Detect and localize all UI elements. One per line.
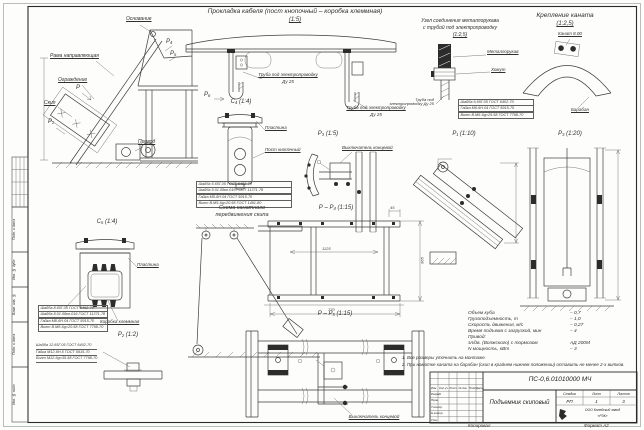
scheme-title-2: передвижения скипа: [196, 213, 288, 219]
label-truba: Труба под электропроводку Ду 25: [384, 98, 434, 107]
p3-5-view-title: Р₃ (1:5): [306, 131, 350, 137]
fastener-table-c5: Шайба 8.65Г.05 ГОСТ 6402-70 Шайба 8.01.0…: [38, 305, 108, 332]
tb-col-list: Лист: [449, 386, 457, 390]
spec-value: [570, 335, 612, 340]
side-stamp-vzam: Взам. инв. №: [12, 287, 28, 322]
c4-view-linework: [218, 113, 266, 189]
spec-row: Грузоподъемность, т– 1,0: [468, 317, 612, 322]
spec-name: Скорость движения, м/с: [468, 323, 570, 328]
tb-row-tkontr: Т.контр.: [431, 405, 443, 409]
c5-view-title: С₅ (1:4): [84, 219, 130, 225]
p2-view-linework: [103, 352, 162, 391]
marker-p: Р: [76, 85, 80, 91]
side-stamp-inv-dubl: Инв. № дубл.: [12, 252, 28, 287]
tb-col-dok: № док.: [457, 386, 469, 390]
spec-name: Объем куба: [468, 311, 570, 316]
side-stamp-text: Инв. № дубл.: [12, 252, 28, 287]
tb-row-razrab: Разраб.: [431, 392, 441, 396]
company-name-2: «РЗК»: [570, 414, 635, 418]
node-title-2: с трубой под электропроводку: [404, 26, 516, 31]
tb-stage-value: РП: [556, 399, 583, 404]
dim-center: 1125: [322, 246, 331, 251]
tb-col-podp: Подп.: [469, 386, 476, 390]
company-logo-mark: [559, 409, 567, 420]
marker-p1: Р₁: [48, 119, 54, 125]
fastener-table-c4: Шайба 5.65Г.05 ГОСТ 6402-70 Шайба 5.01.0…: [196, 181, 292, 208]
spec-name: Грузоподъемность, т: [468, 317, 570, 322]
cable-view-scale: (1:5): [193, 17, 397, 23]
side-stamp-inv-podl: Инв. № подл.: [12, 367, 28, 422]
tb-col-data: Дата: [476, 386, 483, 390]
spec-value: – 3: [570, 347, 612, 352]
doc-title: Подъемник скиповый: [483, 400, 556, 406]
label-metallorukav: Металлорукав: [487, 50, 519, 55]
callout-row: Болт М12-6g×35.58 ГОСТ 7798-70: [36, 356, 97, 363]
p1-view-title: Р₁ (1:10): [436, 131, 492, 137]
p1-linework: [413, 159, 522, 264]
tb-row-nkontr: Н.контр.: [431, 411, 443, 415]
node-linework: [431, 44, 490, 104]
spec-row: N мощность, кВт– 3: [468, 347, 612, 352]
p3-5-linework: [304, 152, 376, 232]
tb-row-utv: Утв.: [431, 418, 438, 422]
pp4-view-title: Р – Р₄ (1:15): [304, 205, 368, 211]
spec-row: Время подъема с загрузкой, мин– 4: [468, 329, 612, 334]
spec-name: Время подъема с загрузкой, мин: [468, 329, 570, 334]
cable-view-title: Прокладка кабеля (пост кнопочный – короб…: [193, 8, 397, 15]
p3-20-linework: [520, 148, 621, 311]
side-stamp-text: Взам. инв. №: [12, 287, 28, 322]
marker-p6: Р₆: [204, 92, 210, 98]
spec-name: N мощность, кВт: [468, 347, 570, 352]
spec-value: – 0,27: [570, 323, 612, 328]
table-row: Винт В.М8-6g×20.58 ГОСТ 7798-70: [38, 324, 108, 331]
table-row: Винт В.М6-6g×25.58 ГОСТ 7798-70: [458, 112, 534, 119]
side-stamp-podp-2: Подп. и дата: [12, 322, 28, 367]
tb-sheets-value: 3: [610, 399, 637, 404]
rope-mount-linework: [523, 39, 611, 108]
company-name-1: ООО Копейский завод: [570, 408, 635, 412]
c4-view-title: С₄ (1:4): [218, 99, 264, 105]
doc-number: ПС-0,6.01010000 МЧ: [483, 376, 637, 383]
label-switch-p3: Выключатель концевой: [342, 146, 393, 151]
copied-label: Копировал: [468, 424, 490, 429]
tb-row-prov: Пров.: [431, 398, 439, 402]
label-tube2: Труба под электропроводку: [338, 106, 414, 111]
node-scale: (1:2,5): [404, 33, 516, 38]
spec-value: – 4: [570, 329, 612, 334]
marker-p4: Р₄: [166, 39, 172, 45]
label-plastina-c4: Пластина: [265, 126, 287, 131]
label-tube2-dn: Ду 25: [338, 113, 414, 118]
p2-callouts: Шайба 12.65Г.05 ГОСТ 6402-70 Гайка М12-6…: [36, 343, 97, 363]
spec-row: Скорость движения, м/с– 0,27: [468, 323, 612, 328]
pp5-view-title: Р – Р₅ (1:15): [303, 311, 367, 317]
label-ograzhdenie: Ограждение: [58, 78, 87, 83]
label-kanat: Канат 8.00: [558, 32, 582, 37]
tb-col-koluch: Кол.уч: [438, 386, 449, 390]
p3-20-view-title: Р₃ (1:20): [542, 131, 598, 137]
side-stamp-podp-1: Подп. и дата: [12, 207, 28, 252]
label-post-knopochny: Пост кнопочный: [265, 148, 301, 153]
label-privod: Привод: [138, 140, 155, 145]
spec-value: – 1,0: [570, 317, 612, 322]
label-skip: Скип: [44, 101, 56, 106]
label-switch-pp5: Выключатель концевой: [338, 415, 410, 420]
dim-top: 45: [390, 205, 394, 210]
main-view-linework: [40, 25, 198, 168]
tb-stage-label: Стадия: [556, 392, 583, 396]
tb-col-izm: Изм.: [430, 386, 438, 390]
spec-row: эл/дв. (Волжского) с тормозомАД 200М: [468, 341, 612, 346]
spec-value: АД 200М: [570, 341, 612, 346]
note-2: 2. При намотке каната на барабан (скип в…: [402, 363, 636, 368]
tb-sheet-label: Лист: [583, 392, 610, 396]
label-osnovanie: Основание: [126, 17, 152, 22]
fastener-table-node: Шайба 6.65Г.05 ГОСТ 6402-70 Гайка М6-6Н.…: [458, 99, 534, 119]
scheme-linework: [188, 224, 320, 357]
format-label: Формат А2: [584, 424, 609, 429]
spec-name: Привод:: [468, 335, 570, 340]
callout-row: Шайба 12.65Г.05 ГОСТ 6402-70: [36, 343, 97, 350]
spec-row: Привод:: [468, 335, 612, 340]
rope-view-title: Крепление каната: [512, 12, 618, 19]
side-stamp-text: Подп. и дата: [12, 322, 28, 367]
spec-value: – 0,7: [570, 311, 612, 316]
label-tube1-dn: Ду 25: [247, 80, 329, 85]
node-title-1: Узел соединения металлорукава: [404, 19, 516, 24]
label-tube1: Труба под электропроводку: [247, 73, 329, 78]
tb-sheets-label: Листов: [610, 392, 637, 396]
label-baraban: Барабан: [571, 108, 589, 113]
marker-p5: Р₅: [170, 51, 176, 57]
label-rama: Рама направляющая: [50, 54, 99, 59]
side-stamp-text: Подп. и дата: [12, 207, 28, 252]
note-1: 1. Все размеры уточнить на монтаже.: [402, 356, 486, 361]
p2-view-title: Р₂ (1:2): [106, 332, 150, 338]
spec-name: эл/дв. (Волжского) с тормозом: [468, 341, 570, 346]
label-plastina-c5: Пластина: [137, 263, 159, 268]
callout-row: Гайка М12-6Н.5 ГОСТ 5915-70: [36, 350, 97, 357]
tb-sheet-value: 1: [583, 399, 610, 404]
table-row: Шайба 8.01.08кп.016 ГОСТ 11371-78: [38, 311, 108, 318]
rope-view-scale: (1:2,5): [512, 21, 618, 27]
spec-row: Объем куба– 0,7: [468, 311, 612, 316]
drawing-sheet: Основание Рама направляющая Ограждение С…: [0, 0, 644, 430]
pp5-linework: [246, 331, 424, 417]
dim-right: 965: [420, 253, 425, 269]
label-khomut: Хомут: [491, 68, 505, 73]
pp4-linework: [264, 209, 424, 317]
side-stamp-text: Инв. № подл.: [12, 367, 28, 422]
